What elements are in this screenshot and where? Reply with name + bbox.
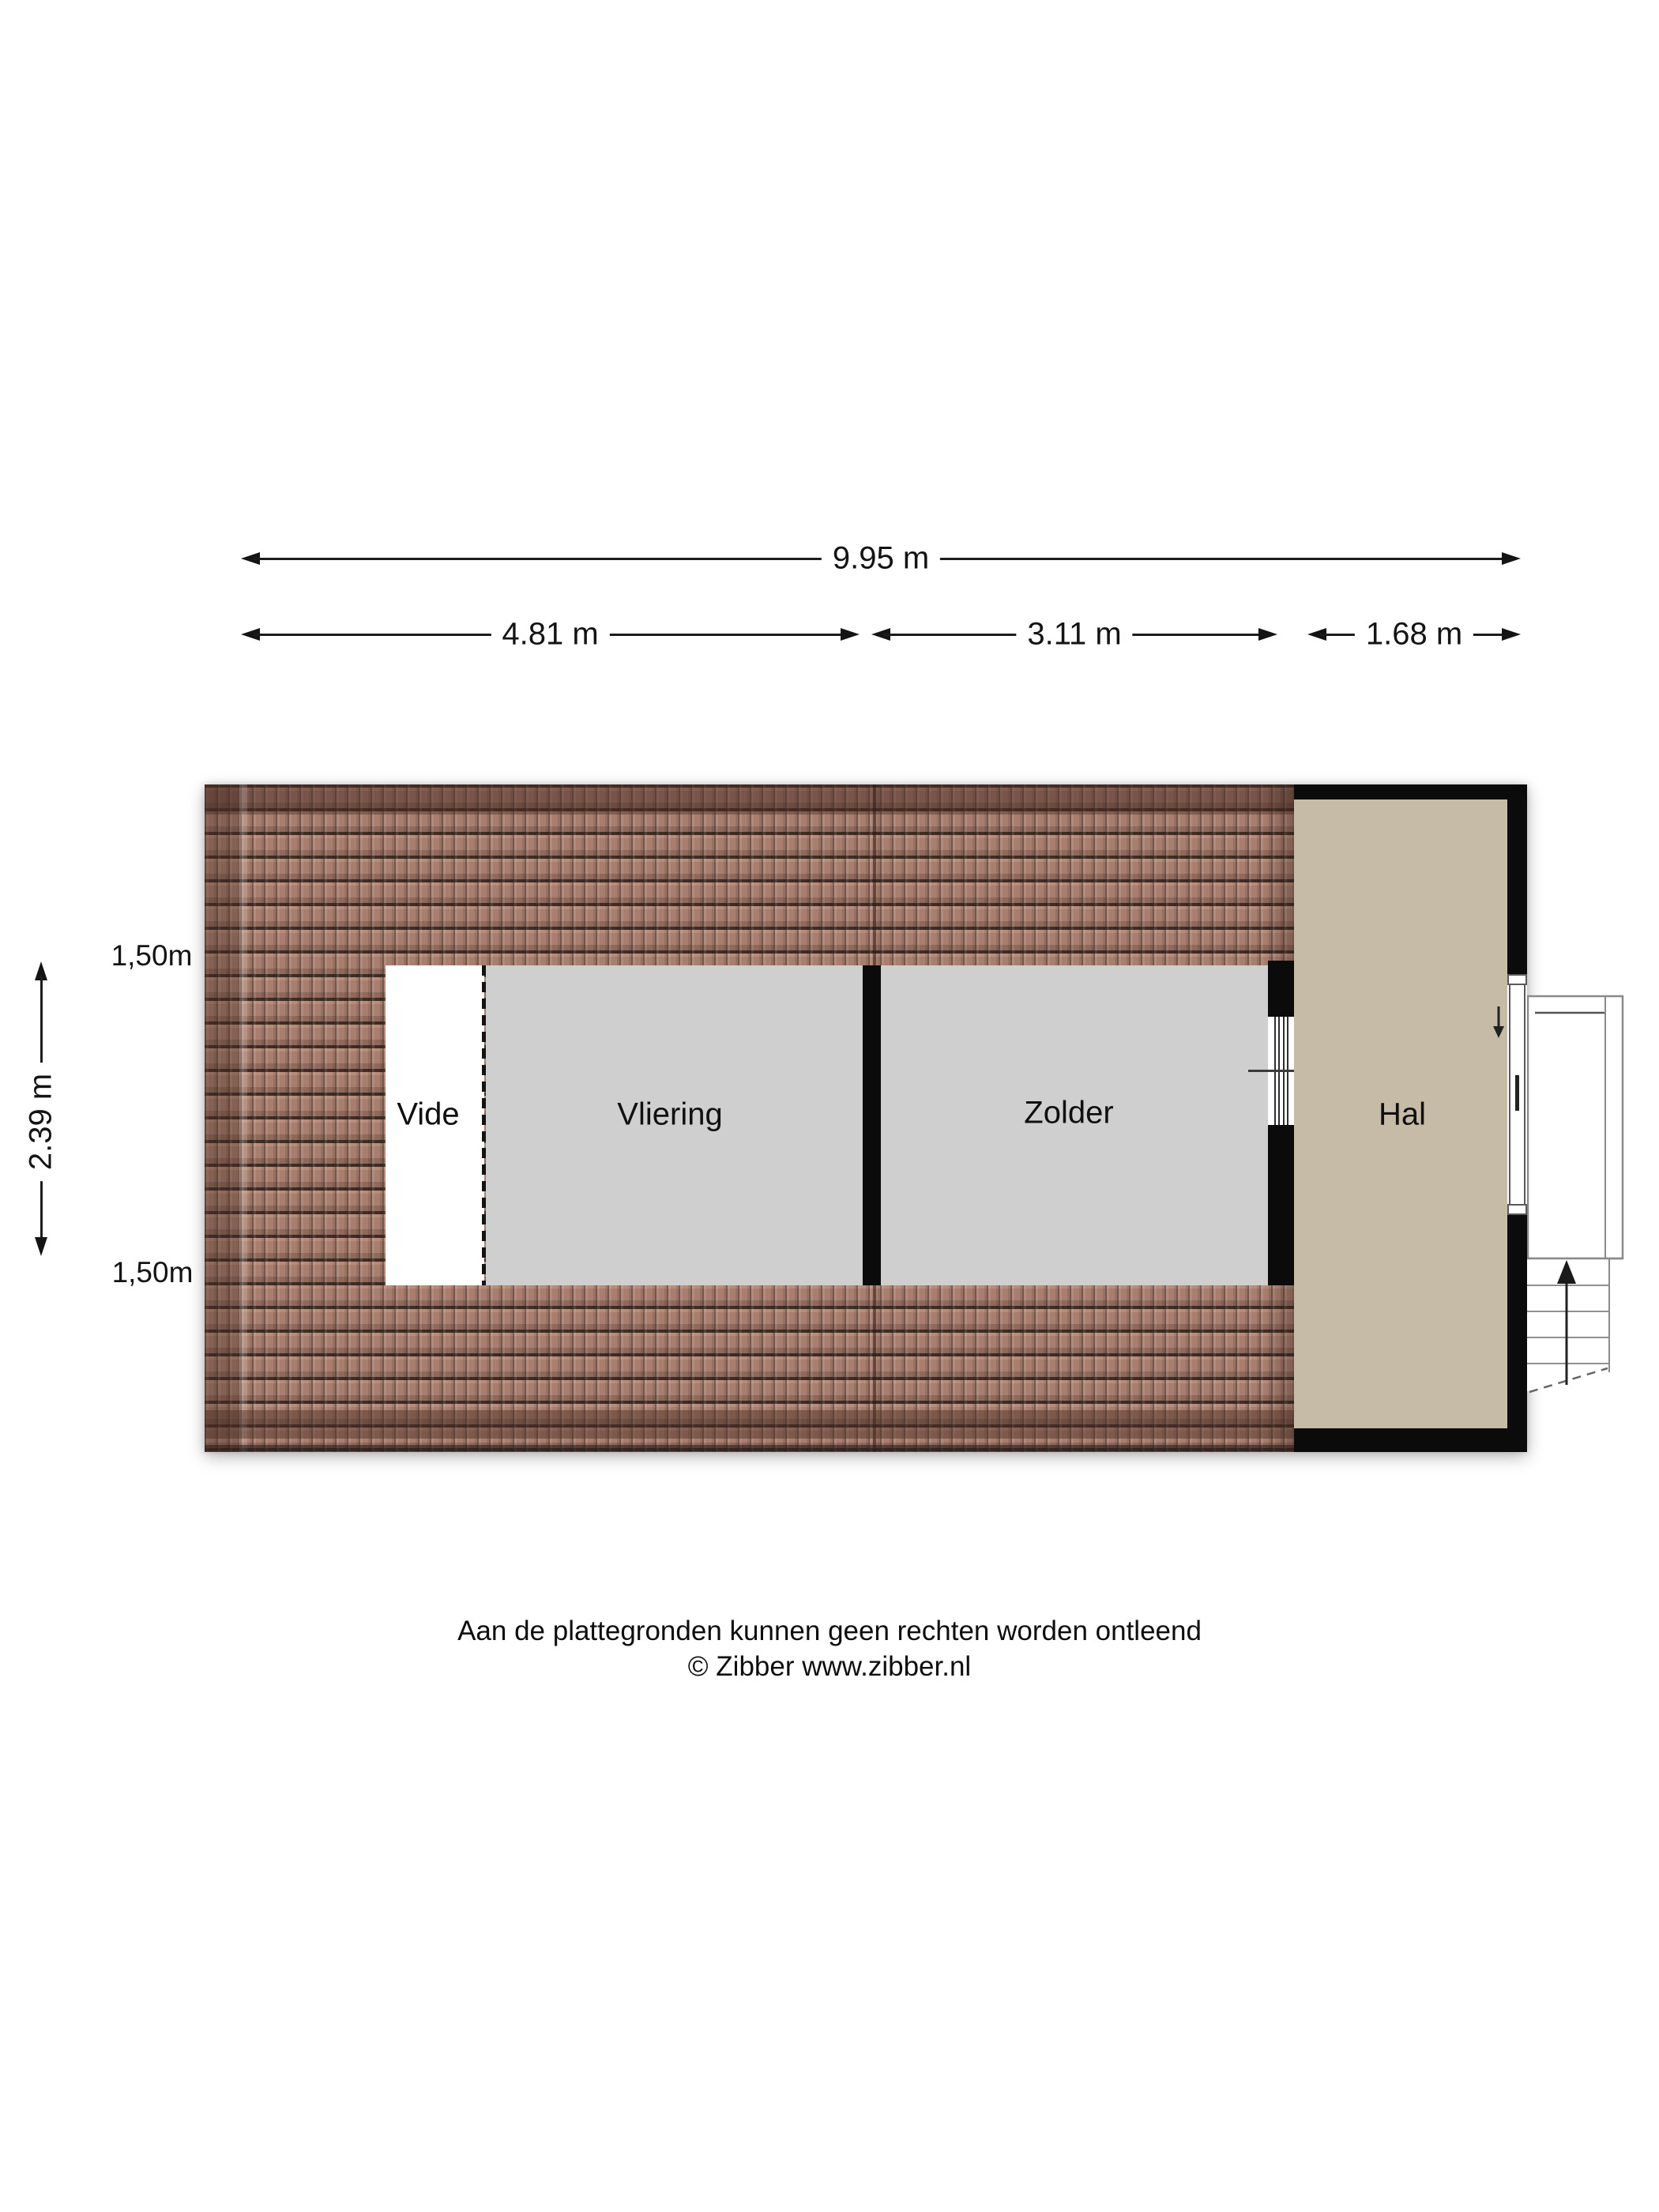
- wall-hal-bottom: [1294, 1428, 1527, 1452]
- floorplan-page: { "dimensions": { "total_width_label": "…: [0, 0, 1659, 2212]
- roof-height-marker-top: 1,50m: [111, 939, 193, 972]
- roof-ridge-band: [205, 784, 1296, 814]
- room-label-vliering: Vliering: [617, 1097, 722, 1133]
- dimension-arrow-right-icon: [1502, 552, 1521, 565]
- dimension-segment-label: 3.11 m: [1016, 617, 1132, 653]
- dimension-height-label: 2.39 m: [22, 1063, 61, 1181]
- window-center-stile: [1515, 1075, 1519, 1111]
- dimension-segment-label: 4.81 m: [491, 617, 609, 653]
- exterior-landing-stairs: [1527, 991, 1627, 1398]
- footer: Aan de plattegronden kunnen geen rechten…: [457, 1613, 1202, 1684]
- room-label-hal: Hal: [1379, 1097, 1426, 1133]
- wall-vliering-zolder: [863, 965, 881, 1285]
- roof-left-highlight: [239, 784, 247, 1452]
- dimension-arrow-down-icon: [35, 1237, 47, 1256]
- footer-disclaimer: Aan de plattegronden kunnen geen rechten…: [457, 1613, 1202, 1649]
- room-label-vide: Vide: [397, 1097, 459, 1133]
- dimension-arrow-right-icon: [841, 628, 860, 641]
- footer-credit: © Zibber www.zibber.nl: [457, 1649, 1202, 1684]
- window-sill-top: [1507, 974, 1527, 985]
- roof-left-edge-band: [205, 784, 239, 1452]
- dimension-segment-hal: 1.68 m: [1307, 617, 1521, 652]
- dimension-total-width: 9.95 m: [241, 541, 1521, 576]
- roof-eave-band: [205, 1410, 1296, 1439]
- wall-zolder-hal: [1268, 961, 1294, 1285]
- roof-height-marker-bottom: 1,50m: [112, 1256, 194, 1289]
- dimension-arrow-right-icon: [1258, 628, 1277, 641]
- hal-window: [1507, 974, 1527, 1215]
- dimension-segment-vliering: 4.81 m: [241, 617, 860, 652]
- wall-hal-right-upper: [1507, 784, 1527, 974]
- room-label-zolder: Zolder: [1024, 1096, 1113, 1131]
- window-frame-line: [1509, 974, 1510, 1215]
- wall-hal-top: [1294, 784, 1527, 799]
- dimension-segment-zolder: 3.11 m: [871, 617, 1277, 652]
- dimension-total-width-label: 9.95 m: [822, 541, 940, 577]
- window-frame-line: [1524, 974, 1525, 1215]
- dimension-segment-label: 1.68 m: [1355, 617, 1473, 653]
- roof-bottom-edge: [205, 1445, 1296, 1452]
- wall-hal-right-lower: [1507, 1215, 1527, 1428]
- landing: [1528, 996, 1623, 1258]
- dimension-arrow-right-icon: [1502, 628, 1521, 641]
- window-sill-bottom: [1507, 1204, 1527, 1215]
- dimension-height: 2.39 m: [30, 961, 52, 1256]
- hal-down-arrow-icon: [1491, 1005, 1507, 1040]
